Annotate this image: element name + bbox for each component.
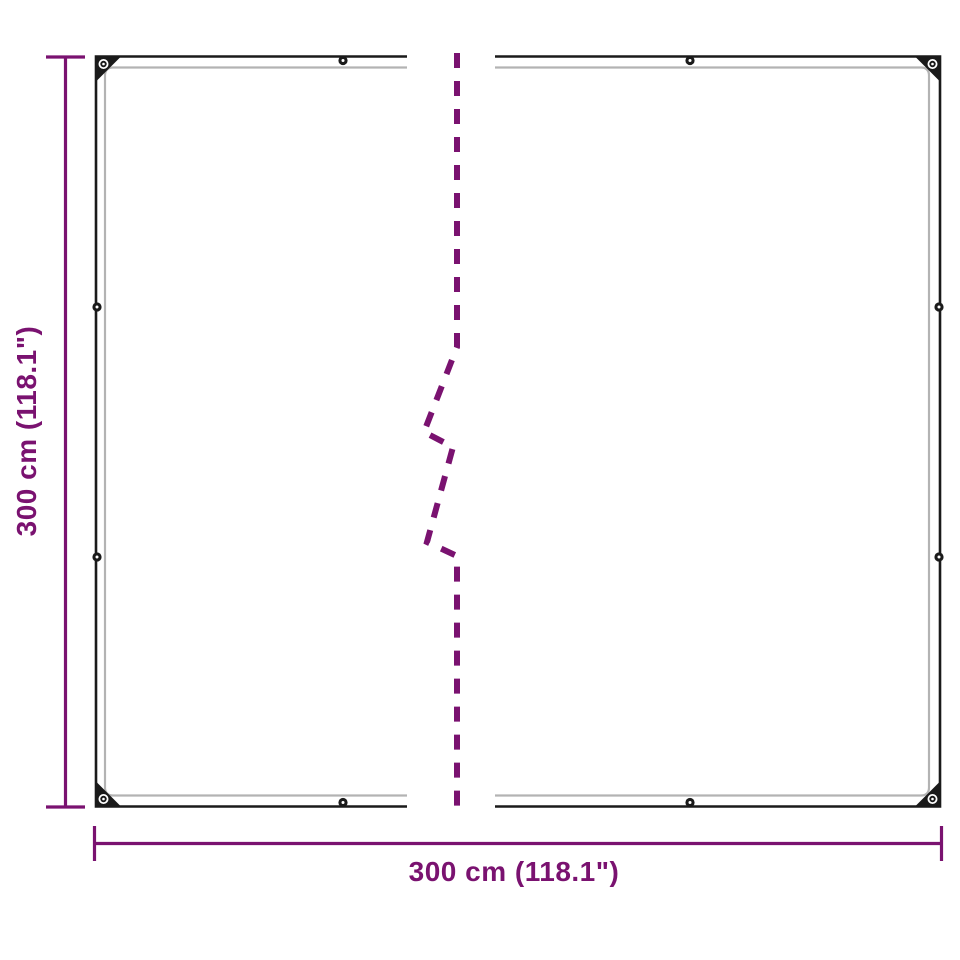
tarp-left-panel-outline xyxy=(96,57,407,807)
grommet-hole xyxy=(931,798,934,801)
height-dimension-line xyxy=(46,57,85,807)
corner-patch-triangle xyxy=(915,57,940,82)
tarp-right-panel-outline xyxy=(495,57,940,807)
corner-patch-bottom-left xyxy=(96,782,121,807)
height-dimension-label: 300 cm (118.1") xyxy=(11,326,43,537)
product-dimension-diagram: 300 cm (118.1") 300 cm (118.1") xyxy=(0,0,960,960)
diagram-canvas xyxy=(0,0,960,960)
tarp-left-panel-seam-line xyxy=(105,68,407,796)
corner-patch-triangle xyxy=(915,782,940,807)
tarp-right-panel-seam-line xyxy=(495,68,929,796)
grommet-hole xyxy=(689,59,692,62)
edge-grommets xyxy=(92,56,943,807)
corner-patch-top-right xyxy=(915,57,940,82)
grommet-hole xyxy=(689,801,692,804)
grommet-hole xyxy=(342,59,345,62)
grommet-hole xyxy=(342,801,345,804)
grommet-hole xyxy=(96,556,99,559)
width-dimension-label: 300 cm (118.1") xyxy=(409,856,620,888)
corner-patch-triangle xyxy=(96,57,121,82)
grommet-hole xyxy=(102,798,105,801)
grommet-hole xyxy=(938,556,941,559)
corner-patch-triangle xyxy=(96,782,121,807)
grommet-hole xyxy=(938,306,941,309)
break-line xyxy=(424,53,457,808)
grommet-hole xyxy=(102,63,105,66)
corner-patch-bottom-right xyxy=(915,782,940,807)
grommet-hole xyxy=(931,63,934,66)
corner-patch-top-left xyxy=(96,57,121,82)
grommet-hole xyxy=(96,306,99,309)
